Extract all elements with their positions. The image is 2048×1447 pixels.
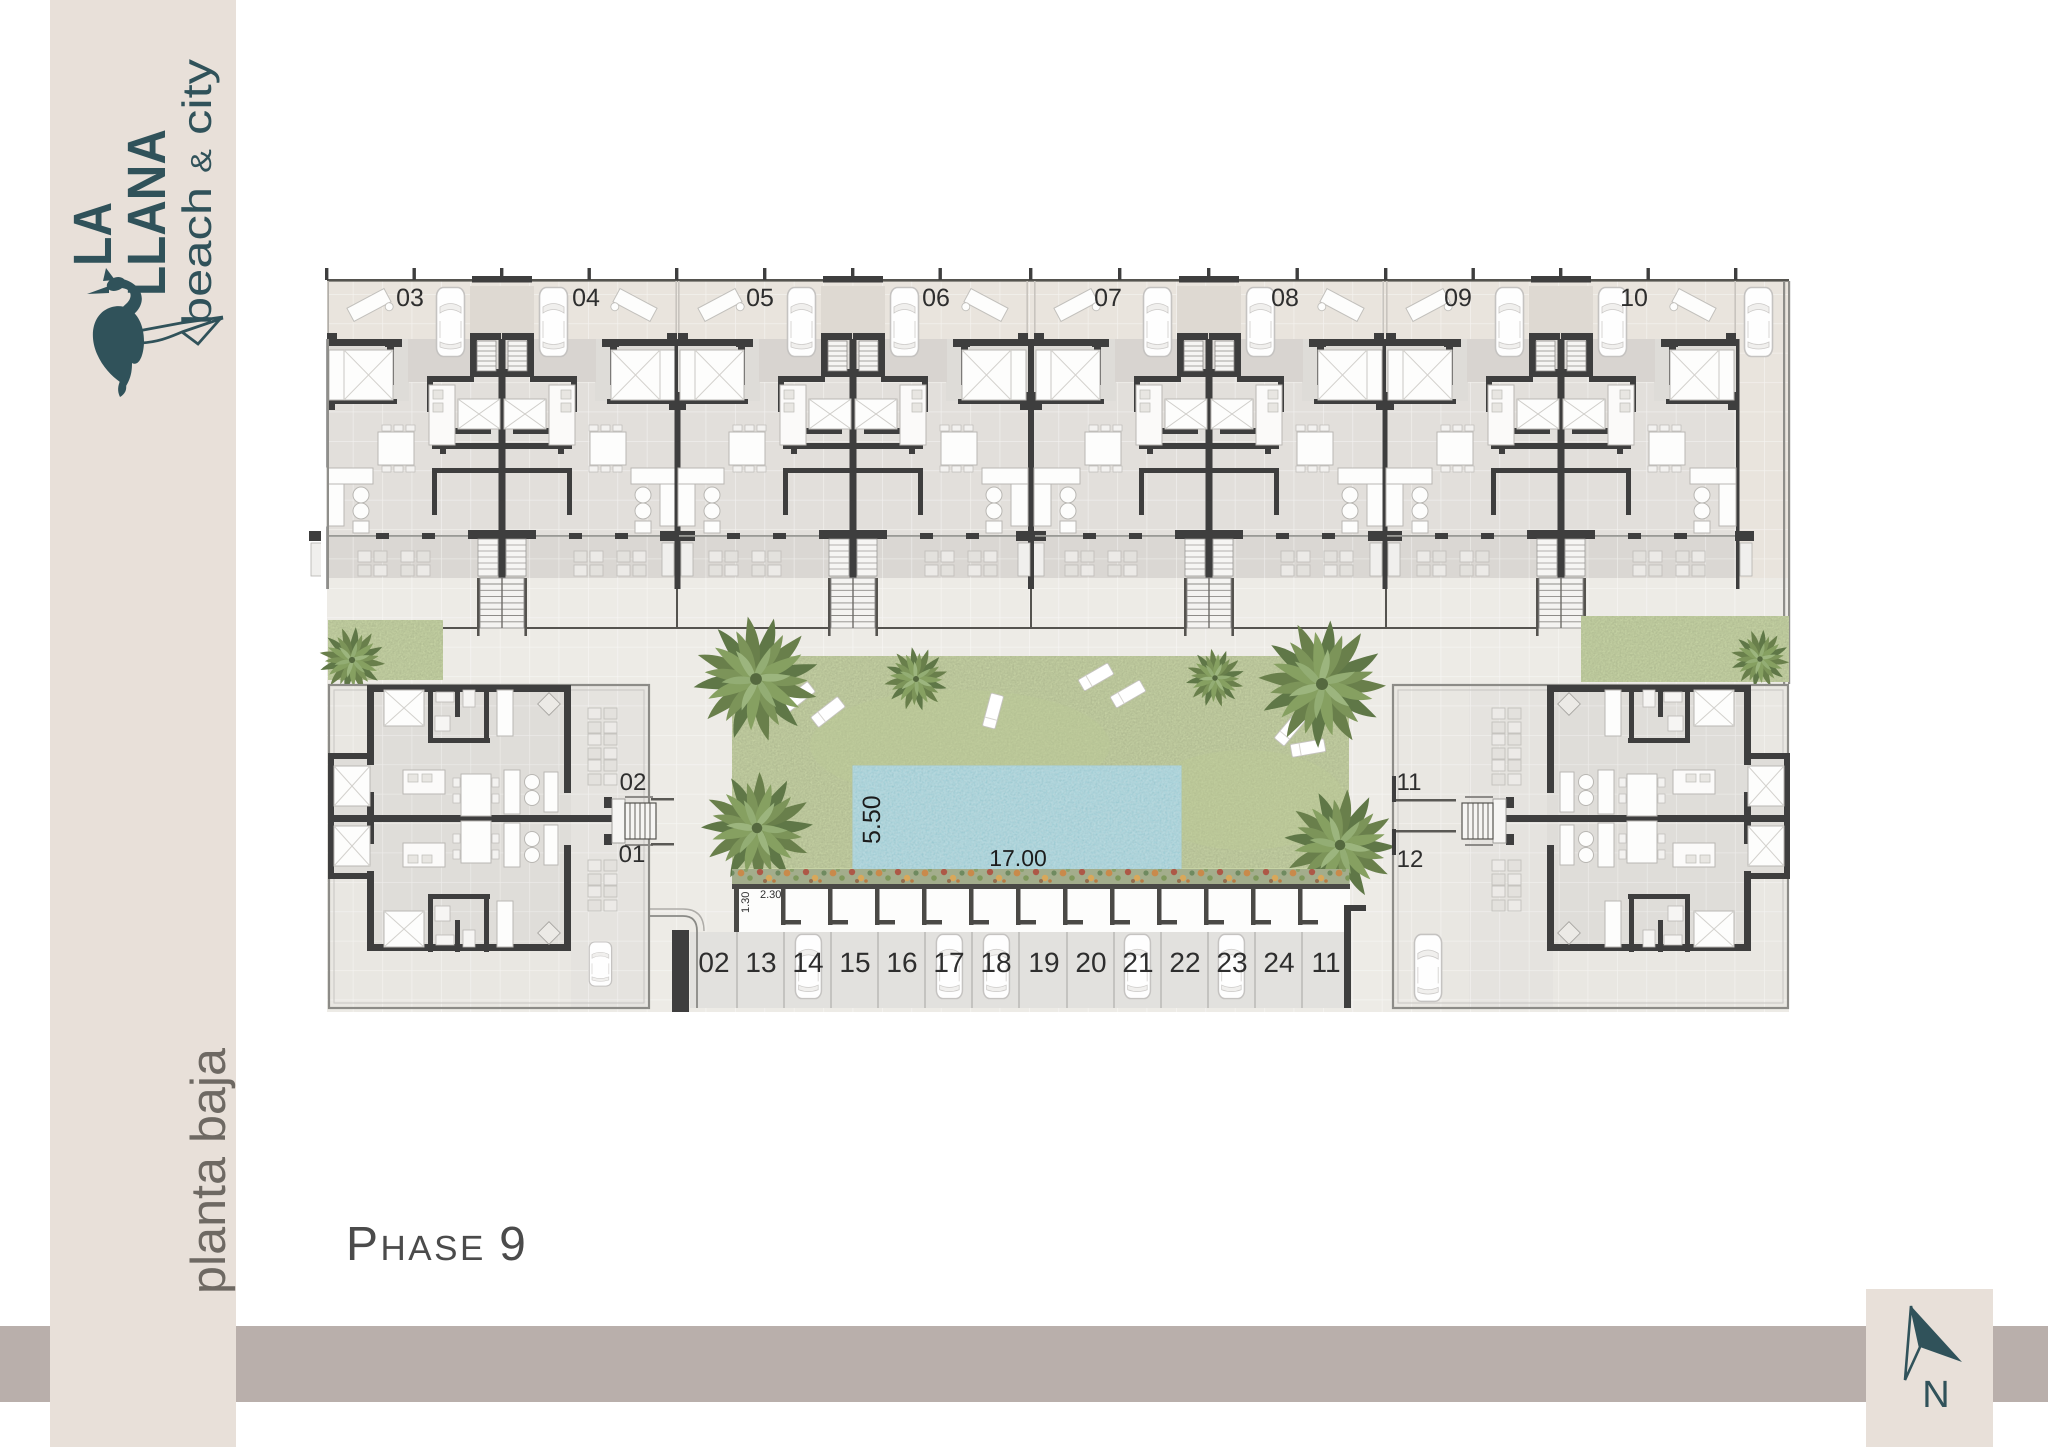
svg-text:11: 11 — [1397, 769, 1422, 796]
svg-text:03: 03 — [396, 284, 424, 312]
svg-text:2.30: 2.30 — [760, 889, 781, 901]
svg-text:LA: LA — [63, 202, 123, 266]
svg-text:01: 01 — [619, 841, 646, 868]
svg-text:beach & city: beach & city — [174, 58, 220, 325]
svg-text:planta baja: planta baja — [182, 1047, 236, 1294]
svg-text:05: 05 — [746, 284, 774, 312]
svg-text:17: 17 — [933, 947, 964, 978]
svg-text:10: 10 — [1620, 284, 1648, 312]
svg-text:PHASE 9: PHASE 9 — [346, 1218, 526, 1271]
svg-text:02: 02 — [698, 947, 729, 978]
svg-text:23: 23 — [1216, 947, 1247, 978]
svg-text:17.00: 17.00 — [989, 845, 1047, 871]
svg-text:1.30: 1.30 — [740, 892, 752, 913]
svg-text:04: 04 — [572, 284, 600, 312]
svg-text:13: 13 — [745, 947, 776, 978]
svg-text:21: 21 — [1122, 947, 1153, 978]
svg-text:06: 06 — [922, 284, 950, 312]
svg-text:18: 18 — [980, 947, 1011, 978]
svg-text:07: 07 — [1094, 284, 1122, 312]
svg-text:22: 22 — [1169, 947, 1200, 978]
svg-text:15: 15 — [839, 947, 870, 978]
svg-text:02: 02 — [620, 769, 647, 796]
svg-text:11: 11 — [1311, 947, 1340, 978]
svg-text:5.50: 5.50 — [858, 795, 886, 844]
svg-text:12: 12 — [1397, 846, 1424, 873]
svg-text:24: 24 — [1263, 947, 1294, 978]
svg-text:16: 16 — [886, 947, 917, 978]
svg-text:19: 19 — [1028, 947, 1059, 978]
svg-text:09: 09 — [1444, 284, 1472, 312]
svg-text:N: N — [1922, 1374, 1949, 1416]
svg-text:14: 14 — [792, 947, 823, 978]
svg-text:08: 08 — [1271, 284, 1299, 312]
svg-text:20: 20 — [1075, 947, 1106, 978]
svg-text:LLANA: LLANA — [117, 129, 177, 296]
